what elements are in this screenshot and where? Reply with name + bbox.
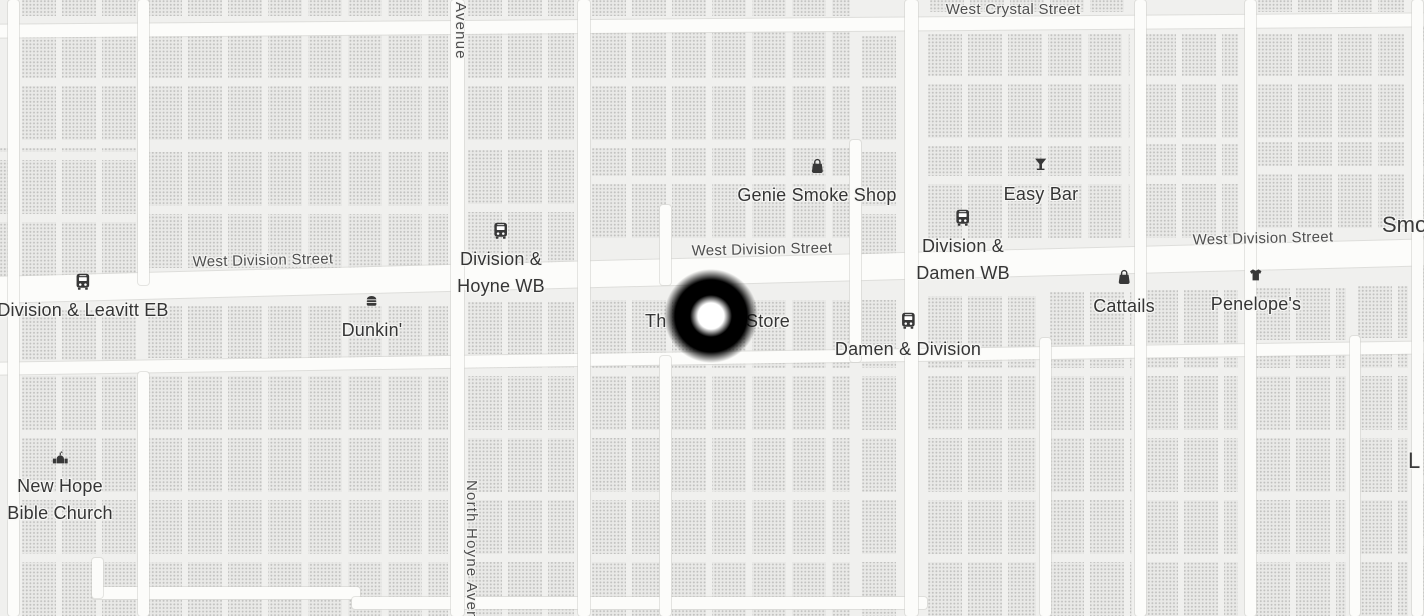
transit-stop-division-hoyne-wb[interactable]: Division & Hoyne WB xyxy=(457,221,545,300)
city-block xyxy=(1142,34,1238,138)
bus-icon xyxy=(74,272,93,292)
transit-stop-division-leavitt-eb[interactable]: Division & Leavitt EB xyxy=(0,272,169,324)
poi-new-hope-bible-church[interactable]: New Hope Bible Church xyxy=(7,448,112,527)
map-canvas[interactable]: West Crystal Street West Division Street… xyxy=(0,0,1424,616)
city-block xyxy=(148,366,448,616)
transit-stop-damen-division[interactable]: Damen & Division xyxy=(835,311,981,363)
poi-dunkin[interactable]: Dunkin' xyxy=(342,292,403,344)
road-vertical xyxy=(578,0,590,616)
road-vertical xyxy=(660,205,671,285)
fast-food-icon xyxy=(363,292,381,312)
city-block xyxy=(862,36,900,140)
road-vertical xyxy=(660,356,671,616)
poi-label: Easy Bar xyxy=(1004,181,1079,208)
road-bottom-middle xyxy=(352,597,927,609)
transit-stop-division-damen-wb[interactable]: Division & Damen WB xyxy=(916,208,1010,287)
road-bottom-left xyxy=(92,587,360,599)
city-block xyxy=(22,0,136,140)
street-label-west-division-left: West Division Street xyxy=(192,250,333,270)
road-damen-avenue xyxy=(905,0,918,616)
road-vertical xyxy=(138,372,149,616)
city-block xyxy=(1258,0,1404,12)
cocktail-icon xyxy=(1032,156,1050,176)
poi-easy-bar[interactable]: Easy Bar xyxy=(1004,156,1079,208)
location-marker xyxy=(663,268,759,364)
church-icon xyxy=(50,448,70,468)
bus-icon xyxy=(954,208,973,228)
poi-genie-smoke-shop[interactable]: Genie Smoke Shop xyxy=(737,157,896,209)
road-vertical xyxy=(138,0,149,285)
shopping-bag-icon xyxy=(1115,268,1133,288)
poi-label: Dunkin' xyxy=(342,317,403,344)
city-block xyxy=(1142,144,1238,238)
city-block xyxy=(592,362,850,616)
bus-icon xyxy=(898,311,917,331)
street-label-west-division-right: West Division Street xyxy=(1192,228,1333,248)
road-vertical xyxy=(1350,336,1360,616)
street-label-north-hoyne: North Hoyne Avenue xyxy=(463,480,480,616)
clipped-poi-label-top-right: Smo xyxy=(1382,212,1424,238)
transit-stop-label: Division & Hoyne WB xyxy=(457,246,545,300)
poi-label: New Hope Bible Church xyxy=(7,473,112,527)
poi-penelopes[interactable]: Penelope's xyxy=(1211,266,1302,318)
city-block xyxy=(1358,286,1408,338)
street-label-west-division-center: West Division Street xyxy=(691,239,832,259)
city-block xyxy=(1258,34,1404,138)
transit-stop-label: Division & Damen WB xyxy=(916,233,1010,287)
road-vertical xyxy=(1412,0,1423,616)
city-block xyxy=(862,360,900,616)
clothing-icon xyxy=(1247,266,1265,286)
city-block xyxy=(148,148,448,268)
poi-cattails[interactable]: Cattails xyxy=(1093,268,1155,320)
city-block xyxy=(1050,356,1132,616)
poi-label: Cattails xyxy=(1093,293,1155,320)
city-block xyxy=(22,148,136,276)
road-vertical xyxy=(1040,338,1051,616)
shopping-bag-icon xyxy=(808,157,826,177)
clipped-poi-label-mid-right: L xyxy=(1408,448,1420,474)
city-block xyxy=(468,302,574,354)
city-block xyxy=(1256,352,1346,616)
city-block xyxy=(148,306,448,358)
poi-label: Genie Smoke Shop xyxy=(737,182,896,209)
city-block xyxy=(1358,350,1408,616)
street-label-west-crystal: West Crystal Street xyxy=(946,1,1081,18)
city-block xyxy=(928,34,1130,138)
city-block xyxy=(0,148,8,276)
poi-label: Penelope's xyxy=(1211,291,1302,318)
road-bottom-left-stub xyxy=(92,558,103,598)
city-block xyxy=(1144,354,1238,616)
city-block xyxy=(468,364,574,616)
street-label-avenue-top: Avenue xyxy=(452,2,469,60)
transit-stop-label: Damen & Division xyxy=(835,336,981,363)
transit-stop-label: Division & Leavitt EB xyxy=(0,297,169,324)
bus-icon xyxy=(491,221,510,241)
city-block xyxy=(928,358,1036,616)
